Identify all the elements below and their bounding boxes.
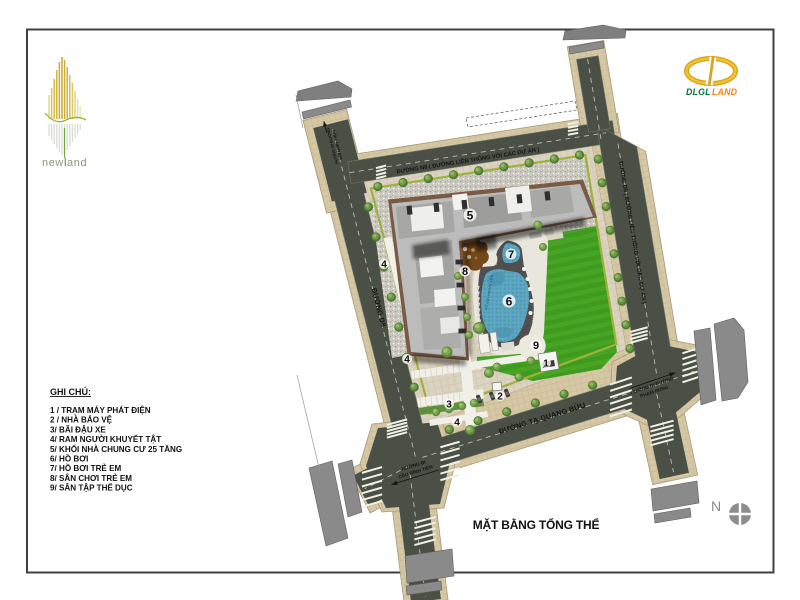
svg-text:4/ RAM NGƯỜI KHUYẾT TẬT: 4/ RAM NGƯỜI KHUYẾT TẬT	[50, 434, 161, 444]
svg-text:4: 4	[381, 260, 387, 271]
svg-text:4: 4	[404, 355, 410, 366]
svg-text:3/ BÃI ĐẬU XE: 3/ BÃI ĐẬU XE	[50, 425, 106, 434]
svg-text:MẶT BẰNG TỔNG THỂ: MẶT BẰNG TỔNG THỂ	[473, 517, 600, 532]
svg-text:8/ SÂN CHƠI TRẺ EM: 8/ SÂN CHƠI TRẺ EM	[50, 474, 132, 483]
svg-text:9: 9	[533, 340, 539, 352]
svg-text:2 / NHÀ BẢO VỆ: 2 / NHÀ BẢO VỆ	[50, 416, 113, 425]
svg-text:DLGL: DLGL	[686, 87, 711, 97]
svg-text:newland: newland	[42, 157, 87, 169]
svg-text:5/ KHỐI NHÀ CHUNG CƯ 25 TẦNG: 5/ KHỐI NHÀ CHUNG CƯ 25 TẦNG	[50, 444, 182, 454]
svg-text:4: 4	[454, 418, 460, 429]
svg-text:3: 3	[446, 400, 452, 411]
svg-text:7: 7	[508, 249, 514, 261]
svg-text:1 / TRẠM MÁY PHÁT ĐIỆN: 1 / TRẠM MÁY PHÁT ĐIỆN	[50, 406, 151, 415]
svg-text:1: 1	[543, 359, 549, 370]
svg-text:6/ HỒ BƠI: 6/ HỒ BƠI	[50, 454, 88, 464]
svg-text:2: 2	[497, 392, 503, 403]
svg-text:LAND: LAND	[712, 87, 738, 97]
svg-text:GHI CHÚ:: GHI CHÚ:	[50, 386, 91, 397]
svg-text:N: N	[711, 498, 721, 514]
svg-text:5: 5	[467, 208, 474, 222]
svg-text:6: 6	[506, 294, 513, 308]
svg-text:9/ SÂN TẬP THỂ DỤC: 9/ SÂN TẬP THỂ DỤC	[50, 484, 133, 493]
svg-text:8: 8	[462, 266, 468, 278]
svg-text:7/ HỒ BƠI TRẺ EM: 7/ HỒ BƠI TRẺ EM	[50, 463, 121, 473]
